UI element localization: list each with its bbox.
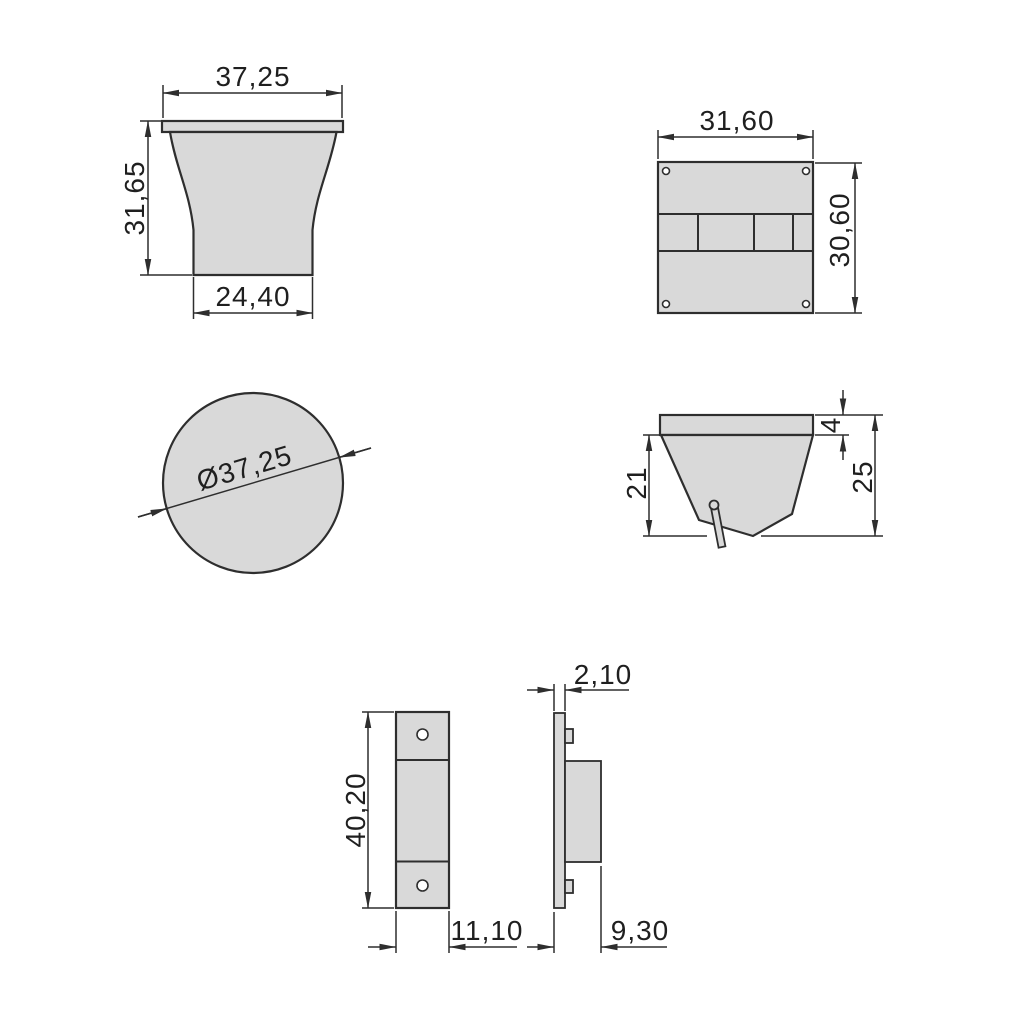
- dimension-knob-top-width: 37,25: [163, 61, 342, 118]
- plate-corner-hole: [803, 168, 810, 175]
- plate-back-body: [658, 162, 813, 313]
- dim-label-latch-thickness: 2,10: [574, 659, 633, 690]
- knob-front-view: 37,25 31,65 24,40: [119, 61, 343, 319]
- knob-top-view: Ø37,25: [138, 393, 371, 573]
- latch-side-tab: [565, 729, 573, 743]
- dimensioned-drawing-canvas: 37,25 31,65 24,40 31,60: [0, 0, 1024, 1024]
- dim-label-knob-front-bottom-width: 24,40: [215, 281, 290, 312]
- dimension-plate-height: 30,60: [815, 163, 862, 313]
- latch-screw-hole: [417, 729, 428, 740]
- knob-side-view: 21 4 25: [621, 390, 883, 548]
- diameter-arrow: [339, 448, 371, 457]
- latch-side-plate: [554, 713, 565, 908]
- latch-side-tab: [565, 880, 573, 893]
- dimension-latch-depth: 9,30: [527, 866, 669, 953]
- dim-label-latch-width: 11,10: [451, 915, 524, 946]
- dimension-side-total-height: 25: [847, 415, 878, 536]
- latch-front-view: 40,20 11,10: [340, 712, 524, 953]
- dimension-latch-width: 11,10: [368, 911, 524, 953]
- dimension-side-flange-thickness: 4: [815, 390, 883, 460]
- dim-label-knob-front-height: 31,65: [119, 160, 150, 235]
- dimension-plate-width: 31,60: [658, 105, 813, 159]
- dimension-knob-bottom-width: 24,40: [194, 277, 313, 319]
- diameter-arrow: [138, 509, 167, 517]
- dimension-latch-height: 40,20: [340, 712, 394, 908]
- plate-back-view: 31,60 30,60: [658, 105, 862, 313]
- screw-pin-head: [710, 501, 719, 510]
- knob-side-flange: [660, 415, 813, 435]
- latch-side-view: 2,10 9,30: [527, 659, 669, 953]
- dim-label-latch-height: 40,20: [340, 772, 371, 847]
- plate-corner-hole: [663, 301, 670, 308]
- latch-screw-hole: [417, 880, 428, 891]
- knob-front-body: [170, 132, 337, 275]
- dim-label-plate-height: 30,60: [824, 192, 855, 267]
- dim-label-side-total-height: 25: [847, 460, 878, 493]
- dim-label-latch-depth: 9,30: [611, 915, 670, 946]
- dimension-latch-thickness: 2,10: [527, 659, 632, 711]
- dim-label-side-flange-thickness: 4: [815, 417, 846, 434]
- dimension-side-body-height: 21: [621, 435, 659, 536]
- latch-front-body: [396, 712, 449, 908]
- plate-corner-hole: [663, 168, 670, 175]
- knob-front-flange: [162, 121, 343, 132]
- knob-side-body: [661, 435, 813, 536]
- plate-corner-hole: [803, 301, 810, 308]
- dim-label-knob-front-top-width: 37,25: [215, 61, 290, 92]
- dim-label-side-body-height: 21: [621, 466, 652, 499]
- dim-label-plate-width: 31,60: [699, 105, 774, 136]
- technical-drawing-page: 37,25 31,65 24,40 31,60: [0, 0, 1024, 1024]
- latch-side-block: [565, 761, 601, 862]
